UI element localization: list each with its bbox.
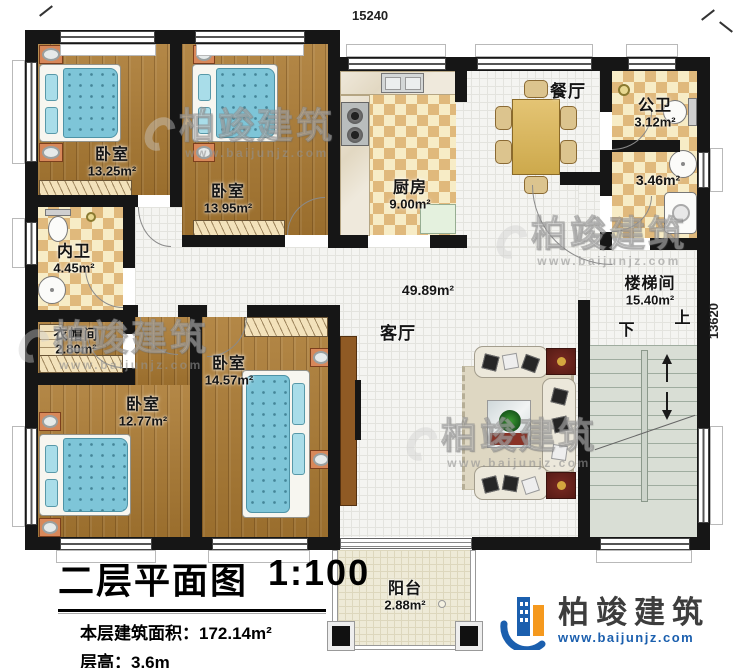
title-underline [58, 609, 326, 612]
window [26, 62, 37, 162]
window [26, 222, 37, 265]
room-label-stairwell: 楼梯间 15.40m² [624, 275, 675, 308]
sofa [542, 378, 576, 472]
window-sill [710, 148, 723, 192]
wall-segment [578, 300, 590, 537]
stair-down-arrow-icon [666, 392, 668, 416]
wall-segment [328, 235, 368, 248]
window [698, 428, 709, 523]
side-table [546, 472, 576, 499]
wall-segment [123, 207, 135, 268]
balcony-knob-icon [438, 600, 446, 608]
corner-tick-icon [719, 21, 733, 32]
wall-segment [455, 57, 467, 102]
dining-chair [524, 80, 548, 98]
room-label-bedroom2: 卧室 13.95m² [204, 183, 252, 216]
window [628, 58, 676, 70]
plant-icon [499, 410, 521, 432]
wardrobe [39, 180, 132, 196]
wall-segment [190, 305, 202, 550]
room-label-kitchen: 厨房 9.00m² [389, 179, 430, 212]
wall-segment [560, 172, 612, 185]
wardrobe [193, 220, 285, 236]
bed [192, 64, 278, 142]
room-label-living-area: 49.89m² [402, 282, 454, 298]
room-label-inner-bath: 内卫 4.45m² [53, 243, 94, 276]
window-sill [12, 218, 25, 268]
wardrobe [244, 317, 328, 337]
stair-up-arrow-icon [666, 358, 668, 382]
window [26, 428, 37, 525]
sofa [474, 346, 548, 378]
balcony-column [456, 622, 482, 650]
balcony-sliding-door [340, 538, 472, 549]
stair-landing [590, 500, 697, 537]
wall-segment [25, 373, 123, 385]
sink-icon [38, 276, 66, 304]
side-table [546, 348, 576, 375]
kitchen-sink [381, 73, 424, 93]
wall-segment [328, 305, 340, 537]
dining-chair [495, 140, 512, 164]
title-underline-thin [58, 613, 326, 614]
company-logo: 柏竣建筑 www.baijunjz.com [496, 592, 710, 650]
room-label-balcony: 阳台 2.88m² [384, 580, 425, 613]
title-block: 二层平面图1:100 本层建筑面积：172.14m² 层高：3.6m [58, 552, 370, 668]
dimension-right: 13620 [706, 303, 721, 339]
wall-segment [600, 57, 612, 112]
wall-segment [650, 238, 697, 250]
dining-chair [495, 106, 512, 130]
wall-segment [170, 30, 182, 207]
corner-tick-icon [701, 9, 715, 20]
window [600, 538, 690, 550]
room-label-dining: 餐厅 [550, 82, 586, 102]
stair-up-label: 上 [674, 310, 691, 328]
wall-segment [430, 235, 467, 248]
window [477, 58, 592, 70]
shower-hook-icon [86, 212, 96, 222]
shower-hook-icon [618, 84, 630, 96]
room-label-bedroom4: 卧室 14.57m² [205, 355, 253, 388]
coffee-table [487, 400, 531, 448]
wall-segment [25, 195, 138, 207]
room-label-living: 客厅 [380, 324, 416, 344]
stove-icon [341, 102, 369, 146]
toilet-tank [45, 209, 71, 216]
dining-table [512, 99, 560, 175]
room-label-public-bath: 公卫 3.12m² [634, 97, 675, 130]
room-label-bedroom1: 卧室 13.25m² [88, 146, 136, 179]
toilet-icon [48, 216, 68, 242]
window [698, 152, 709, 188]
window-sill [710, 426, 723, 525]
stair-down-label: 下 [618, 322, 635, 340]
nightstand [39, 412, 61, 431]
nightstand [39, 518, 61, 537]
window-sill [346, 44, 446, 57]
window [60, 31, 155, 43]
room-label-bedroom3: 卧室 12.77m² [119, 396, 167, 429]
window [60, 538, 152, 550]
bed [242, 370, 310, 518]
page-title: 二层平面图1:100 [58, 552, 370, 604]
window-sill [596, 550, 692, 563]
washing-machine-icon [664, 192, 697, 234]
wall-segment [178, 305, 207, 317]
wall-segment [25, 310, 123, 322]
logo-building-icon [496, 592, 550, 650]
dining-chair [560, 140, 577, 164]
window-sill [196, 44, 304, 56]
wall-segment [182, 235, 285, 247]
window-sill [60, 44, 156, 56]
wall-segment [247, 305, 340, 317]
sofa [474, 466, 548, 500]
window [195, 31, 305, 43]
stair-stringer [641, 350, 648, 502]
nightstand [193, 143, 215, 162]
floor-height-line: 层高：3.6m [80, 648, 370, 668]
window-sill [475, 44, 593, 57]
wall-segment [328, 30, 340, 247]
window-sill [12, 60, 25, 164]
window [348, 58, 446, 70]
window-sill [12, 426, 25, 527]
bed [39, 64, 121, 142]
wall-segment [123, 305, 138, 317]
window [212, 538, 308, 550]
toilet-tank [688, 98, 697, 126]
bed [39, 434, 131, 516]
floor-plan-canvas: 卧室 13.25m² 卧室 13.95m² 内卫 4.45m² 衣帽间 2.80… [0, 0, 750, 668]
window-sill [626, 44, 678, 57]
corner-tick-icon [39, 5, 53, 16]
tv-icon [355, 380, 361, 440]
wall-segment [123, 368, 135, 385]
nightstand [39, 143, 63, 162]
dimension-top: 15240 [352, 8, 388, 23]
room-label-cloakroom: 衣帽间 2.80m² [54, 326, 99, 357]
room-label-wash-area: 3.46m² [636, 172, 680, 188]
floor-area-line: 本层建筑面积：172.14m² [80, 619, 370, 644]
dining-chair [560, 106, 577, 130]
